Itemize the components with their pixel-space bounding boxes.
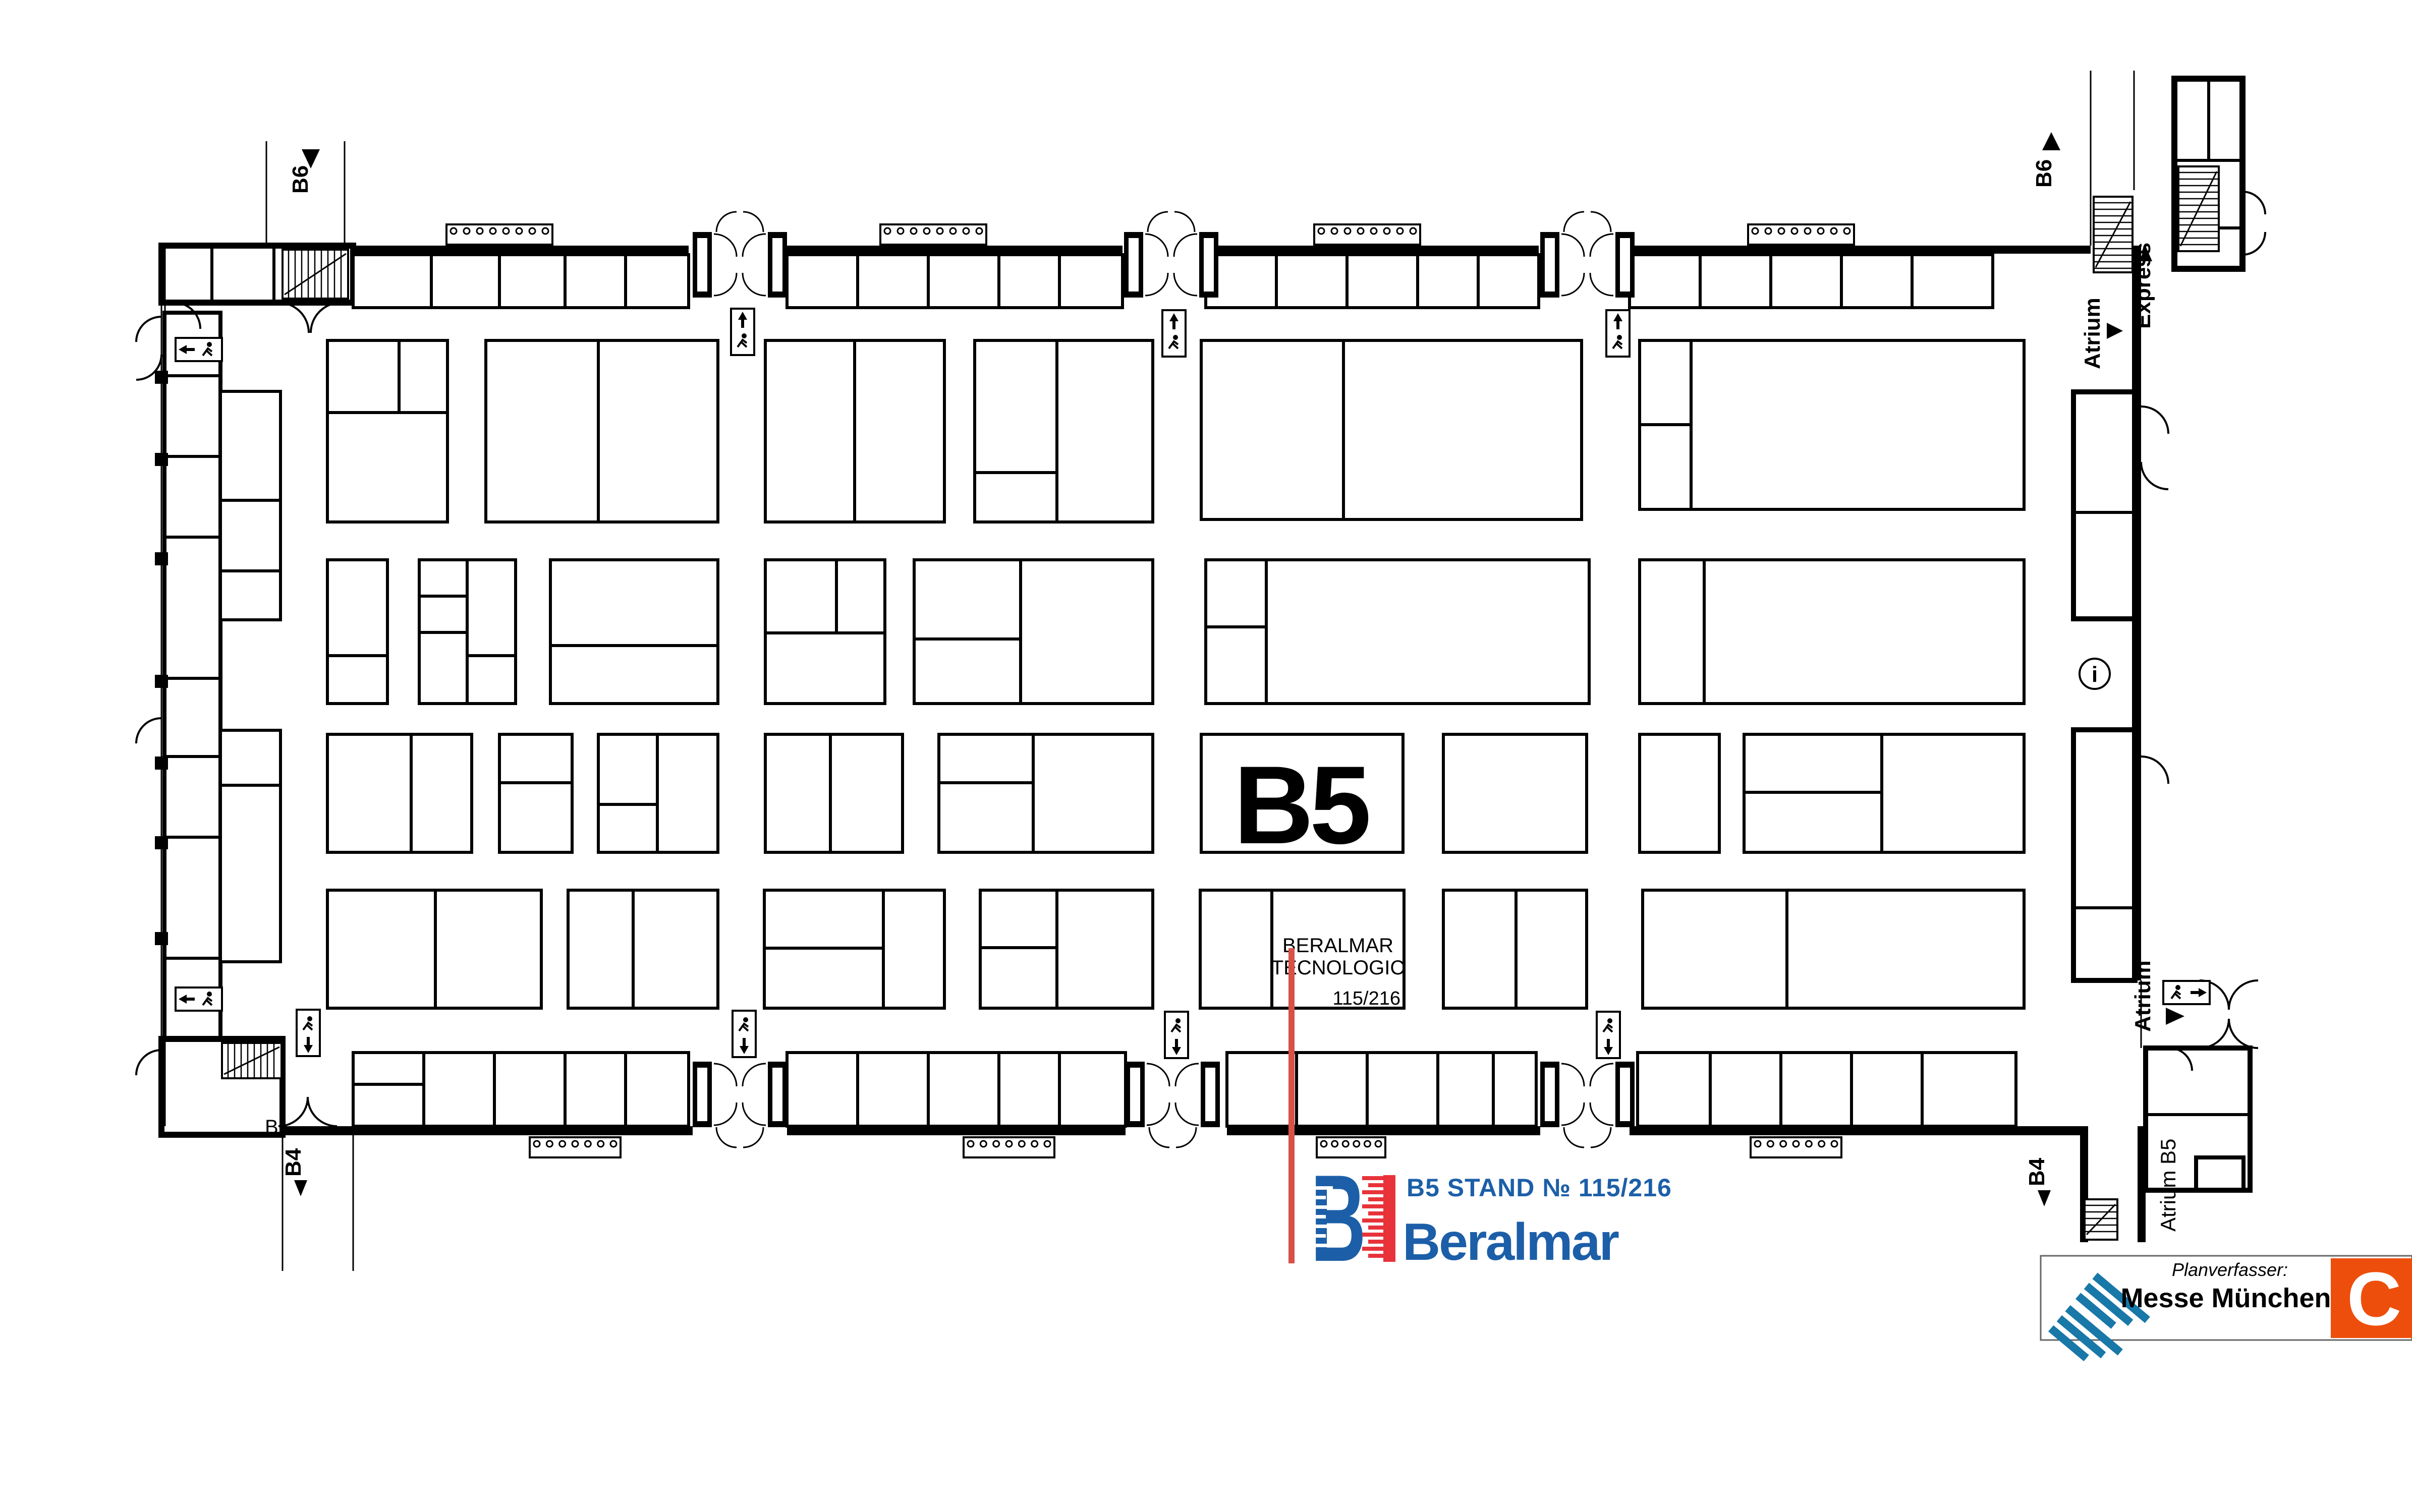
vestibule-door-arc xyxy=(1561,1102,1584,1125)
room xyxy=(2073,730,2135,980)
room xyxy=(164,313,220,1039)
stand xyxy=(353,1053,689,1126)
exit-runner-head xyxy=(1617,335,1622,340)
service-fixture xyxy=(446,224,552,245)
label-wall-letter: B xyxy=(265,1116,278,1138)
stand-callout-line xyxy=(1288,948,1295,1263)
callout-stand-label: B5 STAND № 115/216 xyxy=(1407,1174,1672,1202)
label-b6-right: B6 xyxy=(2032,159,2056,188)
wall xyxy=(1630,246,2091,254)
door-arc xyxy=(2141,406,2168,434)
stand xyxy=(1643,890,2024,1008)
stand-number: 115/216 xyxy=(1332,988,1400,1009)
wall-pillar xyxy=(155,371,168,384)
atrium-bottom-arrow-icon xyxy=(2166,1008,2184,1025)
vestibule-pillar-slot xyxy=(1545,1068,1555,1121)
door-arc xyxy=(2169,1048,2192,1071)
stand xyxy=(550,560,718,704)
wall xyxy=(787,246,1123,254)
stand xyxy=(1443,734,1587,852)
vestibule-door-arc xyxy=(743,1102,766,1125)
vestibule-door-arc xyxy=(1561,234,1584,257)
exit-runner-head xyxy=(1173,335,1178,340)
wall-pillar xyxy=(155,757,168,770)
stand-name-line1: BERALMAR xyxy=(1282,935,1393,957)
outer-door-arc xyxy=(1564,1127,1584,1147)
vestibule-door-arc xyxy=(743,273,766,296)
stand xyxy=(1638,1053,2016,1126)
vestibule-pillar-slot xyxy=(1545,238,1555,292)
door-arc xyxy=(311,303,341,333)
planner-box: Planverfasser: Messe München C xyxy=(2041,1256,2412,1375)
outer-door-arc xyxy=(1591,1127,1611,1147)
stand xyxy=(486,340,718,522)
hall-label: B5 xyxy=(1233,743,1369,867)
planner-caption: Planverfasser: xyxy=(2172,1259,2288,1280)
outer-door-arc xyxy=(743,212,763,232)
outer-door-arc xyxy=(716,212,737,232)
stand xyxy=(975,340,1153,522)
wall-pillar xyxy=(155,675,168,688)
vestibule-door-arc xyxy=(714,234,737,257)
vestibule-door-arc xyxy=(714,1102,737,1125)
room xyxy=(2073,392,2135,619)
outer-door-arc xyxy=(1176,1127,1196,1147)
door-arc xyxy=(136,1050,161,1075)
stand xyxy=(787,255,1123,308)
wall xyxy=(353,246,689,254)
exit-runner-head xyxy=(743,1017,748,1022)
exit-runner-head xyxy=(1175,1018,1181,1023)
wall-pillar xyxy=(155,552,168,565)
door-arc xyxy=(278,303,309,333)
vestibule-door-arc xyxy=(1590,1064,1613,1086)
outer-door-arc xyxy=(1591,212,1611,232)
beralmar-logo: B xyxy=(1311,1149,1395,1288)
stand xyxy=(1201,340,1582,519)
stand xyxy=(1630,255,1993,308)
outer-door-arc xyxy=(1148,212,1168,232)
stand xyxy=(914,560,1153,704)
vestibule-door-arc xyxy=(1145,234,1168,257)
room xyxy=(2196,1157,2243,1190)
label-b4-left: B4 xyxy=(281,1148,306,1177)
planner-name: Messe München xyxy=(2120,1283,2331,1313)
label-b4-right: B4 xyxy=(2025,1157,2049,1186)
vestibule-door-arc xyxy=(1174,273,1197,296)
label-atrium-b5: Atrium B5 xyxy=(2156,1139,2180,1232)
exit-runner-head xyxy=(1607,1018,1612,1023)
door-arc xyxy=(2242,192,2265,214)
b4-left-arrow-icon xyxy=(294,1180,307,1196)
vestibule-pillar-slot xyxy=(697,1068,707,1121)
door-arc xyxy=(174,303,200,329)
stand xyxy=(499,734,572,852)
stand xyxy=(220,730,281,962)
stand xyxy=(939,734,1153,852)
exit-runner-head xyxy=(742,333,747,338)
service-fixture xyxy=(1748,224,1854,245)
b6-right-arrow-icon xyxy=(2042,132,2060,150)
stand xyxy=(1640,340,2024,509)
vestibule-door-arc xyxy=(714,273,737,296)
vestibule-pillar-slot xyxy=(1620,238,1630,292)
info-icon-letter: i xyxy=(2092,662,2098,687)
door-arc xyxy=(2141,757,2168,784)
vestibule-pillar-slot xyxy=(1130,1068,1140,1121)
corner-logo-letter: C xyxy=(2347,1256,2401,1341)
label-b6-left: B6 xyxy=(288,165,313,194)
vestibule-pillar-slot xyxy=(772,238,782,292)
vestibule-pillar-slot xyxy=(1620,1068,1630,1121)
callout-brand: Beralmar xyxy=(1403,1213,1618,1271)
service-fixture xyxy=(880,224,986,245)
door-arc xyxy=(308,1097,337,1126)
door-arc xyxy=(136,317,161,342)
floor-plan: B5 BERALMAR TECNOLOGIC 115/216 B6 B6 B4 … xyxy=(0,0,2412,1512)
door-arc xyxy=(2141,462,2168,489)
vestibule-pillar-slot xyxy=(1205,1068,1215,1121)
vestibule-door-arc xyxy=(1147,1102,1169,1125)
exit-runner-head xyxy=(307,1016,312,1021)
stand xyxy=(568,890,718,1008)
wall-pillar xyxy=(155,453,168,466)
wall-pillar xyxy=(155,932,168,945)
vestibule-door-arc xyxy=(1590,1102,1613,1125)
outer-door-arc xyxy=(1174,212,1195,232)
vestibule-door-arc xyxy=(1175,1102,1199,1125)
atrium-top-arrow-icon xyxy=(2107,323,2123,339)
stand xyxy=(327,340,447,522)
label-atrium-bottom: Atrium xyxy=(2130,960,2155,1032)
vestibule-pillar-slot xyxy=(772,1068,782,1121)
vestibule-door-arc xyxy=(1561,273,1584,296)
vestibule-door-arc xyxy=(1174,234,1197,257)
vestibule-door-arc xyxy=(1590,234,1613,257)
stand xyxy=(353,255,689,308)
vestibule-door-arc xyxy=(714,1064,737,1086)
stand xyxy=(1640,734,1719,852)
wall-pillar xyxy=(155,836,168,849)
door-arc xyxy=(2229,1019,2258,1048)
service-fixture xyxy=(1314,224,1420,245)
vestibule-door-arc xyxy=(743,234,766,257)
vestibule-door-arc xyxy=(1590,273,1613,296)
stand xyxy=(787,1053,1126,1126)
outer-door-arc xyxy=(1149,1127,1169,1147)
exit-runner-head xyxy=(207,342,212,347)
stand xyxy=(220,391,281,620)
outer-door-arc xyxy=(743,1127,763,1147)
vestibule-door-arc xyxy=(743,1064,766,1086)
vestibule-door-arc xyxy=(1175,1064,1199,1086)
vestibule-door-arc xyxy=(1561,1064,1584,1086)
label-atrium-top: Atrium xyxy=(2080,298,2105,369)
stand xyxy=(327,734,472,852)
stand xyxy=(1227,1053,1536,1126)
door-arc xyxy=(136,718,161,743)
vestibule-door-arc xyxy=(1145,273,1168,296)
vestibule-door-arc xyxy=(1147,1064,1169,1086)
b4-right-arrow-icon xyxy=(2038,1190,2051,1206)
stand xyxy=(1640,560,2024,704)
vestibule-pillar-slot xyxy=(697,238,707,292)
vestibule-pillar-slot xyxy=(1204,238,1214,292)
outer-door-arc xyxy=(716,1127,737,1147)
wall xyxy=(1206,246,1539,254)
exit-runner-head xyxy=(207,992,212,997)
vestibule-pillar-slot xyxy=(1129,238,1139,292)
outer-door-arc xyxy=(1564,212,1584,232)
plan-geometry-layer xyxy=(136,71,2265,1271)
beralmar-logo-red-stripes xyxy=(1362,1175,1395,1262)
stand xyxy=(1206,560,1589,704)
stand xyxy=(327,560,387,704)
stand xyxy=(1206,255,1539,308)
door-arc xyxy=(2200,1019,2229,1048)
door-arc xyxy=(2242,232,2265,255)
stand xyxy=(765,734,903,852)
door-arc xyxy=(2229,980,2258,1010)
exit-runner-head xyxy=(2175,985,2180,990)
